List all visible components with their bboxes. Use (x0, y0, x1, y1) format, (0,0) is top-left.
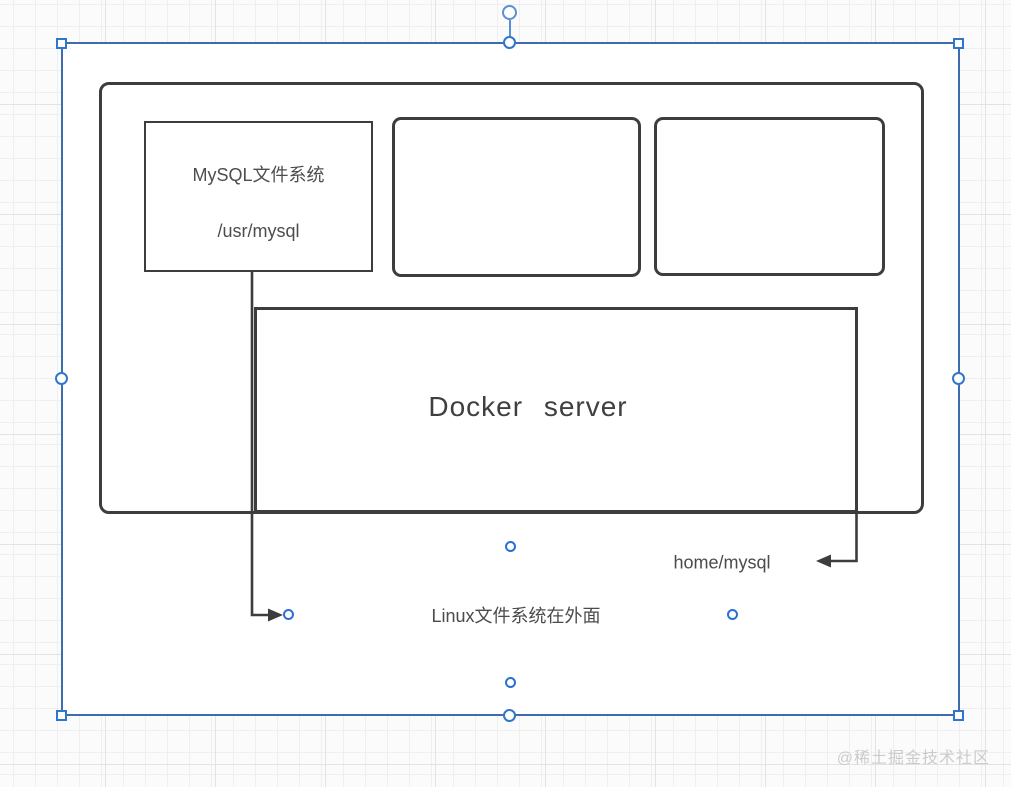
mysql-filesystem-box[interactable]: MySQL文件系统 /usr/mysql (144, 121, 373, 272)
rotation-handle[interactable] (502, 5, 517, 20)
connection-point-north[interactable] (505, 541, 516, 552)
resize-handle-nw[interactable] (56, 38, 67, 49)
resize-handle-s[interactable] (503, 709, 516, 722)
label-linux-filesystem[interactable]: Linux文件系统在外面 (431, 602, 600, 628)
resize-handle-n[interactable] (503, 36, 516, 49)
empty-box-1[interactable] (392, 117, 641, 277)
resize-handle-ne[interactable] (953, 38, 964, 49)
label-home-mysql[interactable]: home/mysql (673, 553, 770, 574)
connection-point-west[interactable] (283, 609, 294, 620)
connection-point-south[interactable] (505, 677, 516, 688)
watermark: @稀土掘金技术社区 (837, 744, 990, 768)
mysql-box-title: MySQL文件系统 (192, 161, 324, 187)
mysql-box-path: /usr/mysql (217, 221, 299, 242)
empty-box-2[interactable] (654, 117, 885, 276)
resize-handle-sw[interactable] (56, 710, 67, 721)
docker-server-box[interactable]: Docker server (254, 307, 858, 513)
resize-handle-w[interactable] (55, 372, 68, 385)
resize-handle-e[interactable] (952, 372, 965, 385)
connection-point-east[interactable] (727, 609, 738, 620)
resize-handle-se[interactable] (953, 710, 964, 721)
rotation-handle-stem (509, 20, 511, 37)
canvas-background[interactable]: { "shapes": { "mysql_box": { "title": "M… (0, 0, 1011, 787)
docker-server-label: Docker server (428, 391, 627, 423)
